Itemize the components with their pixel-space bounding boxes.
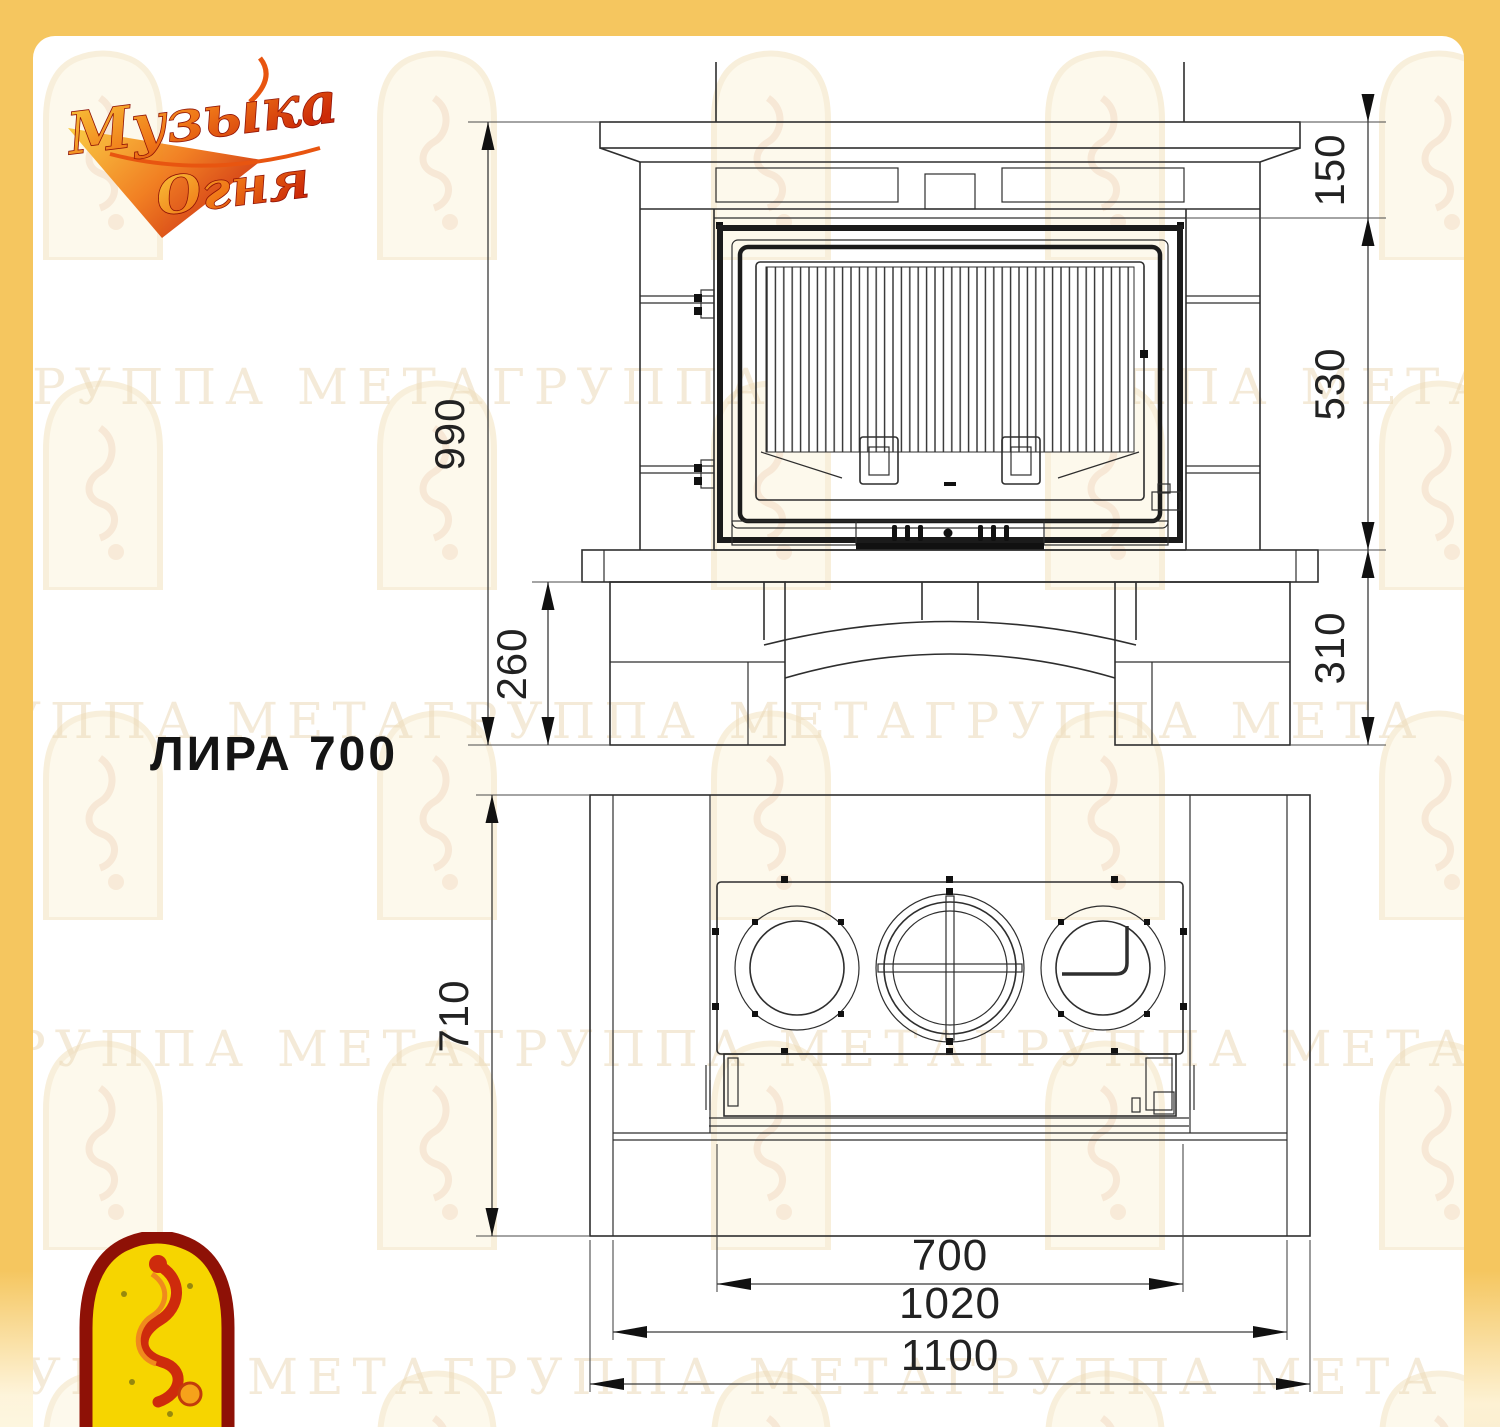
front-view-mantel	[600, 122, 1300, 162]
plan-dim-depth: 710	[430, 795, 590, 1236]
front-view-firebox	[694, 218, 1186, 550]
front-dim-right-chain: 150 530 310	[1186, 94, 1386, 745]
plan-front-box	[613, 1054, 1287, 1140]
model-title: ЛИРА 700	[150, 728, 398, 781]
front-view-hearth	[582, 550, 1318, 582]
dim-label-990: 990	[426, 397, 473, 470]
plan-duct-left	[735, 906, 859, 1030]
plan-dim-widths: 700 1020 1100	[590, 1144, 1310, 1392]
dim-label-700: 700	[912, 1231, 988, 1280]
dim-label-530: 530	[1306, 347, 1353, 420]
emblem-sun-dot	[179, 1383, 201, 1405]
emblem-flame-head	[149, 1255, 167, 1273]
corner-emblem	[72, 1232, 242, 1427]
page: ГРУППА МЕТАГРУППА МЕТАГРУППА МЕТА ГРУППА…	[0, 0, 1500, 1427]
vent-strip	[732, 521, 1168, 550]
front-view-frieze	[640, 162, 1260, 209]
dim-label-1020: 1020	[899, 1279, 1001, 1328]
front-view: 990 260 150 530	[426, 62, 1386, 745]
plan-flue-center	[876, 888, 1024, 1045]
plan-duct-right	[1041, 906, 1165, 1030]
dim-label-710: 710	[430, 979, 477, 1052]
brand-logo: Музыка Огня	[50, 42, 370, 242]
dim-label-150: 150	[1306, 133, 1353, 206]
dim-label-310: 310	[1306, 611, 1353, 684]
front-dim-plinth: 260	[488, 582, 582, 745]
front-view-base	[610, 582, 1290, 745]
dim-label-1100: 1100	[901, 1331, 1000, 1380]
plan-view: 710 700 1020 1100	[430, 795, 1310, 1392]
door-hinges	[694, 290, 714, 488]
dim-label-260: 260	[488, 627, 535, 700]
